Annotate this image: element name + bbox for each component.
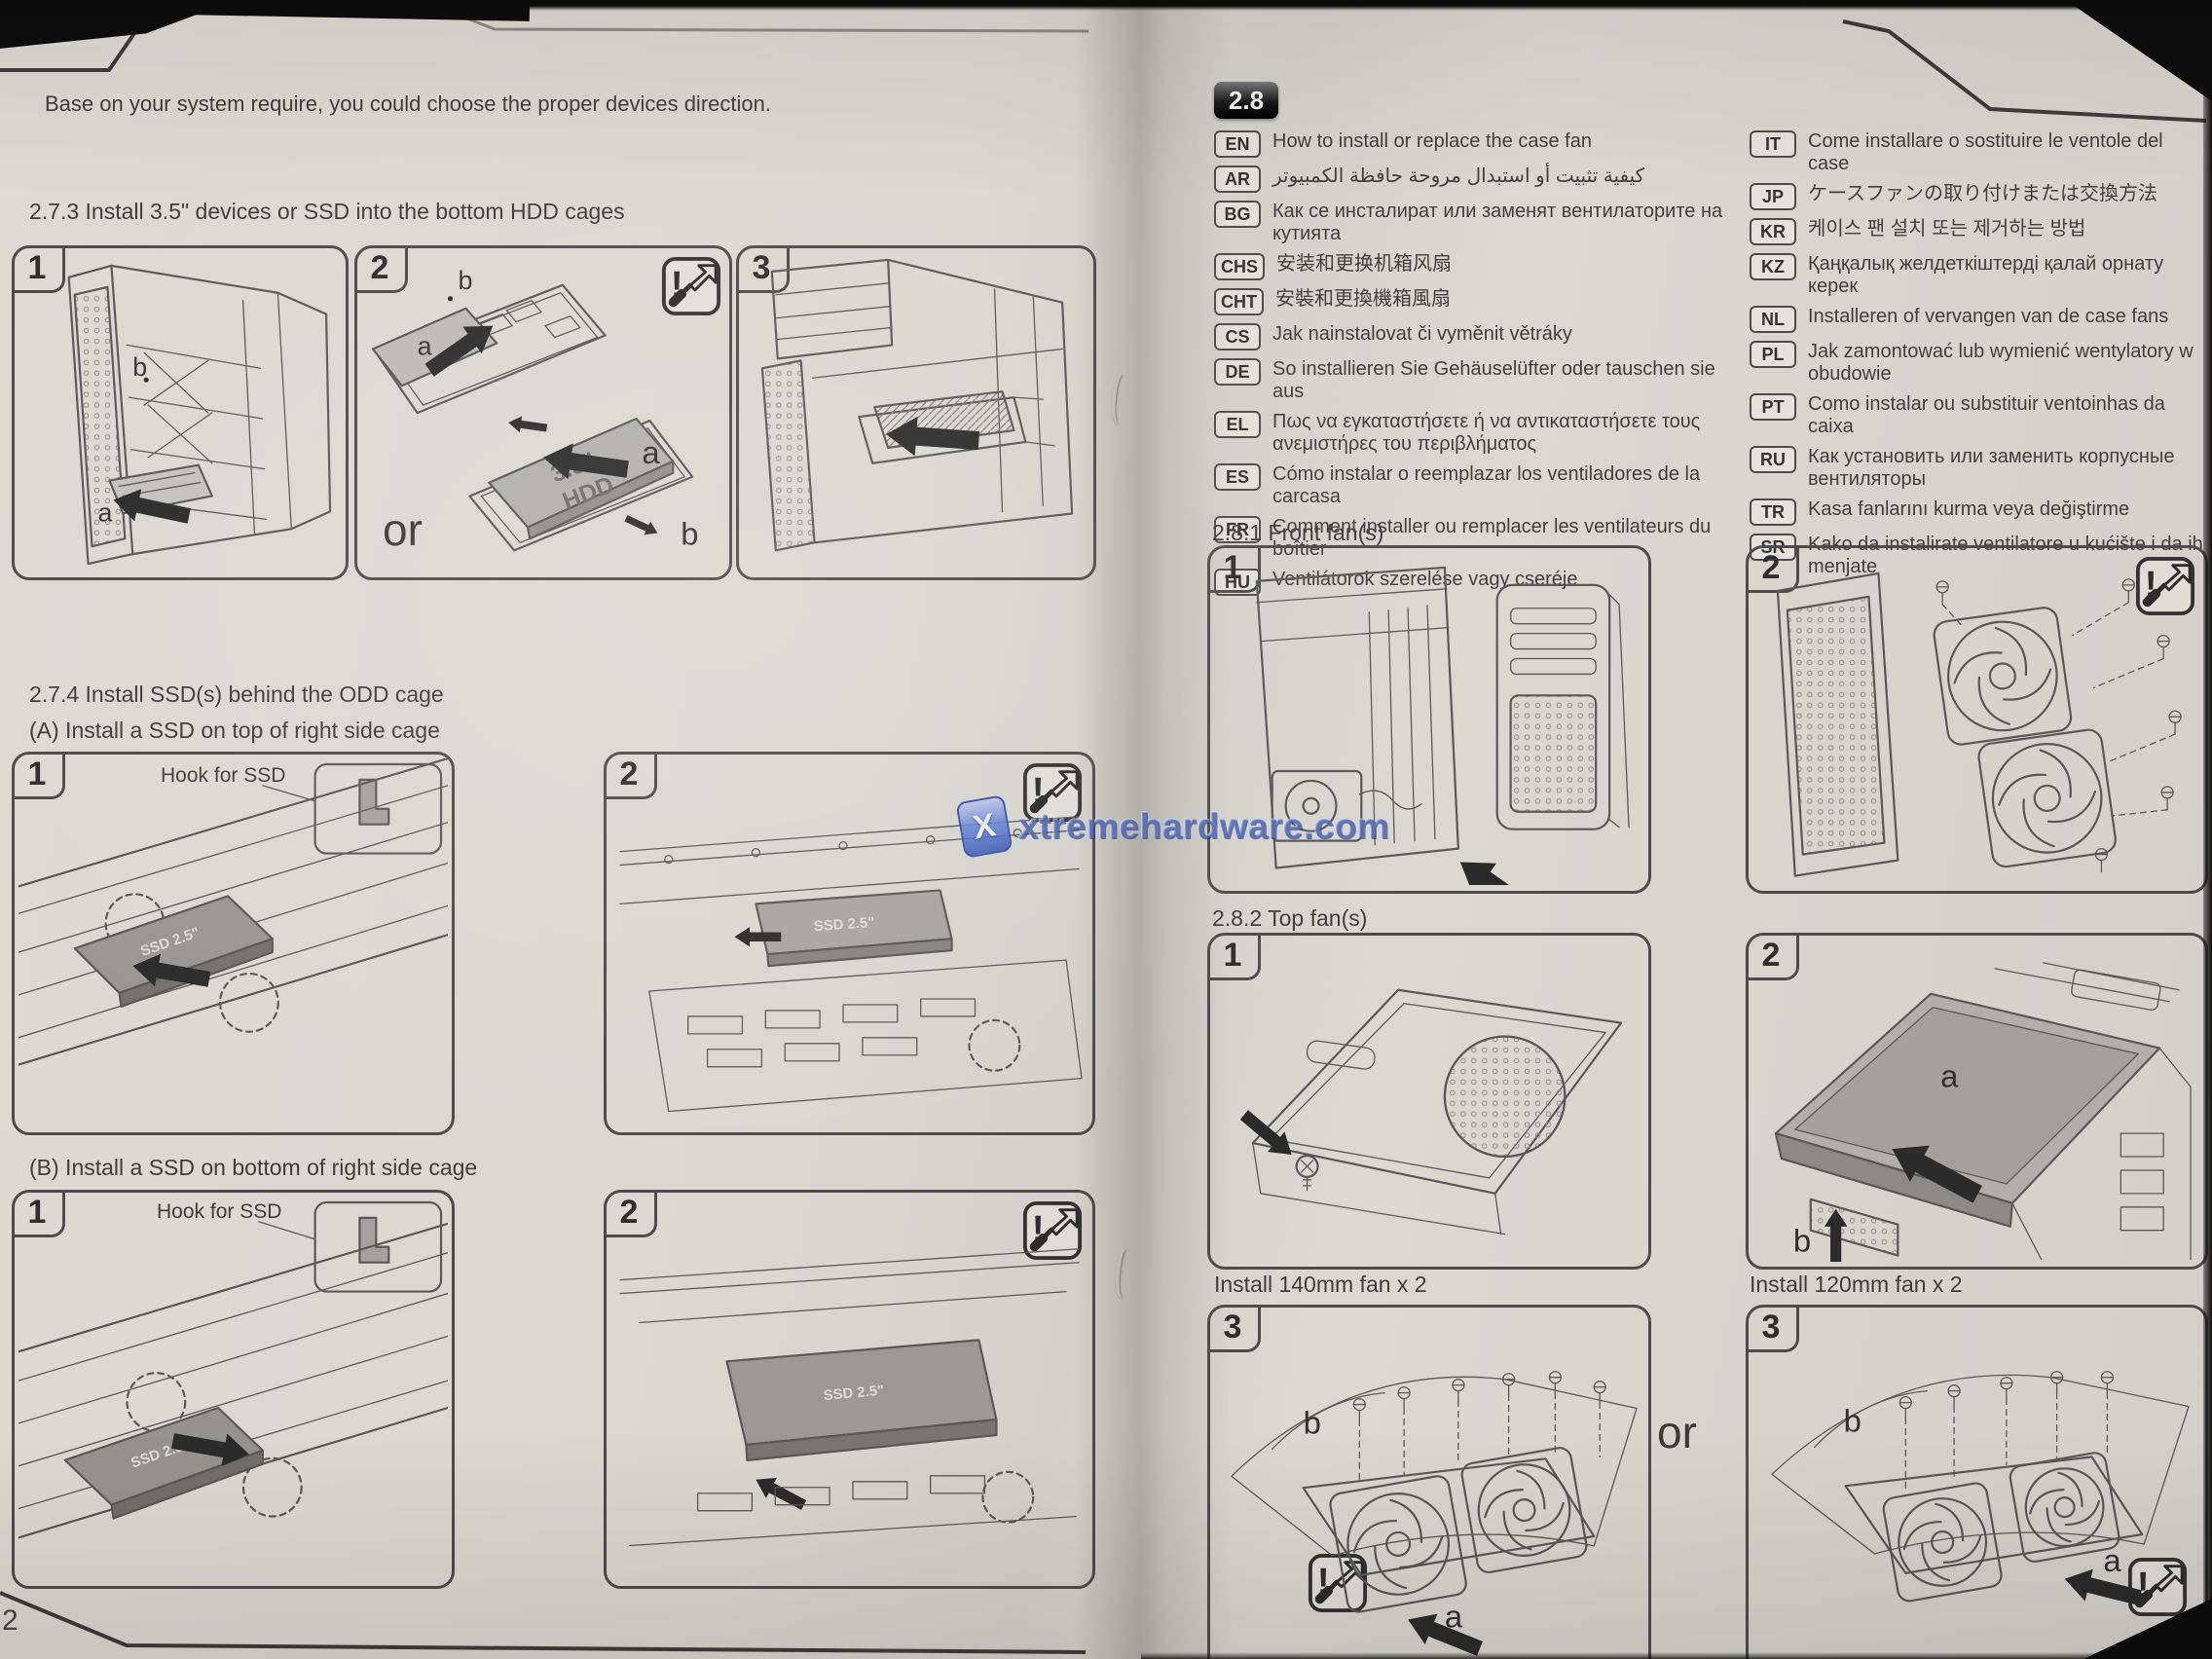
language-code-badge: PT	[1750, 393, 1796, 421]
language-text: كيفية تثبيت أو استبدال مروحة حافظة الكمب…	[1272, 166, 1644, 188]
caption-install-120mm: Install 120mm fan x 2	[1750, 1272, 1963, 1298]
manual-spread: Base on your system require, you could c…	[0, 0, 2212, 1659]
svg-text:a: a	[1940, 1057, 1959, 1093]
language-code-badge: BG	[1214, 201, 1261, 228]
lang-row-bg: BGКак се инсталират или заменят вентилат…	[1214, 201, 1748, 245]
language-text: Қаңқалық желдеткіштерді қалай орнату кер…	[1808, 253, 2207, 298]
figure-282-step1: 1	[1207, 933, 1651, 1270]
figure-140mm-fans: 3 !	[1207, 1305, 1651, 1659]
page-number: 2	[2, 1604, 18, 1638]
or-label: or	[383, 503, 423, 556]
heading-2-7-3: 2.7.3 Install 3.5" devices or SSD into t…	[29, 199, 625, 225]
language-text: 케이스 팬 설치 또는 제거하는 방법	[1808, 218, 2085, 240]
lang-row-cht: CHT安裝和更換機箱風扇	[1214, 288, 1748, 315]
lang-row-jp: JPケースファンの取り付けまたは交換方法	[1750, 183, 2207, 210]
lang-row-ar: ARكيفية تثبيت أو استبدال مروحة حافظة الك…	[1214, 166, 1748, 193]
svg-text:a: a	[418, 331, 432, 360]
lang-row-it: ITCome installare o sostituire le ventol…	[1750, 130, 2207, 175]
figure-282-step2: 2 a b	[1746, 933, 2208, 1270]
language-code-badge: EN	[1214, 130, 1261, 158]
language-text: Как установить или заменить корпусные ве…	[1808, 446, 2207, 491]
ssd-top-mount-drawing: SSD 2.5"	[18, 758, 448, 1126]
language-code-badge: PL	[1750, 341, 1796, 368]
photo-of-manual: Base on your system require, you could c…	[0, 0, 2212, 1659]
intro-text: Base on your system require, you could c…	[45, 92, 771, 117]
language-text: How to install or replace the case fan	[1272, 130, 1592, 153]
language-code-badge: KZ	[1750, 253, 1796, 280]
language-text: 安装和更换机箱风扇	[1276, 253, 1452, 276]
lang-row-pl: PLJak zamontować lub wymienić wentylator…	[1750, 341, 2207, 386]
photo-edge-right	[2203, 0, 2212, 1659]
svg-text:b: b	[1844, 1402, 1862, 1438]
or-label: or	[1657, 1406, 1697, 1458]
language-text: Come installare o sostituire le ventole …	[1808, 130, 2207, 175]
heading-2-7-4: 2.7.4 Install SSD(s) behind the ODD cage	[29, 682, 444, 708]
heading-2-8-1: 2.8.1 Front fan(s)	[1212, 520, 1383, 546]
language-text: Jak nainstalovat či vyměnit větráky	[1272, 323, 1572, 346]
subheading-274-a: (A) Install a SSD on top of right side c…	[29, 718, 440, 744]
language-code-badge: IT	[1750, 130, 1796, 158]
language-code-badge: ES	[1214, 463, 1261, 491]
figure-273-step1: 1 b a	[12, 245, 349, 580]
language-code-badge: TR	[1750, 498, 1796, 526]
staple	[1110, 373, 1131, 424]
language-text: So installieren Sie Gehäuselüfter oder t…	[1272, 358, 1748, 403]
language-code-badge: DE	[1214, 358, 1261, 386]
heading-2-8-2: 2.8.2 Top fan(s)	[1212, 905, 1367, 932]
lang-row-chs: CHS安装和更换机箱风扇	[1214, 253, 1748, 280]
caption-install-140mm: Install 140mm fan x 2	[1214, 1272, 1427, 1298]
top-cover-slide-drawing: a b	[1752, 940, 2201, 1262]
svg-text:b: b	[1304, 1404, 1321, 1440]
top-120mm-fan-install-drawing: b a	[1752, 1311, 2201, 1659]
ssd-tray-top-view-drawing: SSD 2.5"	[610, 758, 1088, 1126]
language-list-right: ITCome installare o sostituire le ventol…	[1750, 130, 2207, 578]
case-tray-insert-drawing	[743, 252, 1089, 571]
figure-120mm-fans: 3 !	[1746, 1305, 2208, 1659]
svg-text:b: b	[681, 515, 698, 551]
svg-text:b: b	[458, 266, 472, 295]
figure-274b-step2: 2 ! SSD 2.5"	[604, 1190, 1095, 1589]
language-text: ケースファンの取り付けまたは交換方法	[1808, 183, 2157, 205]
language-code-badge: CHS	[1214, 253, 1265, 280]
svg-text:a: a	[2103, 1542, 2121, 1578]
ssd-bottom-mount-drawing: SSD 2.5"	[18, 1197, 448, 1580]
lang-row-ru: RUКак установить или заменить корпусные …	[1750, 446, 2207, 491]
lang-row-pt: PTComo instalar ou substituir ventoinhas…	[1750, 393, 2207, 438]
ssd-bottom-tray-drawing: SSD 2.5"	[610, 1197, 1088, 1580]
language-text: Πως να εγκαταστήσετε ή να αντικαταστήσετ…	[1272, 411, 1748, 456]
language-code-badge: NL	[1750, 306, 1796, 333]
language-code-badge: KR	[1750, 218, 1796, 245]
figure-273-step3: 3	[736, 245, 1096, 580]
language-text: Как се инсталират или заменят вентилатор…	[1272, 201, 1748, 245]
language-text: 安裝和更換機箱風扇	[1275, 288, 1451, 311]
figure-274b-step1: 1 Hook for SSD SSD 2.5"	[12, 1190, 455, 1589]
figure-281-step1: 1	[1207, 545, 1651, 894]
front-bezel-removal-drawing	[1214, 552, 1644, 885]
case-bottom-hdd-cage-drawing: b a	[18, 252, 342, 571]
lang-row-kz: KZҚаңқалық желдеткіштерді қалай орнату к…	[1750, 253, 2207, 298]
lang-row-cs: CSJak nainstalovat či vyměnit větráky	[1214, 323, 1748, 350]
subheading-274-b: (B) Install a SSD on bottom of right sid…	[29, 1155, 477, 1181]
lang-row-de: DESo installieren Sie Gehäuselüfter oder…	[1214, 358, 1748, 403]
figure-274a-step1: 1 Hook for SSD SSD 2.5"	[12, 752, 455, 1135]
language-code-badge: RU	[1750, 446, 1796, 473]
figure-273-step2: 2 ! b a	[354, 245, 732, 580]
lang-row-nl: NLInstalleren of vervangen van de case f…	[1750, 306, 2207, 333]
staple	[1114, 1247, 1135, 1299]
svg-text:a: a	[642, 434, 660, 470]
front-fans-screws-drawing	[1752, 552, 2201, 886]
lang-row-kr: KR케이스 팬 설치 또는 제거하는 방법	[1750, 218, 2207, 245]
language-code-badge: CS	[1214, 323, 1261, 350]
language-text: Kasa fanlarını kurma veya değiştirme	[1808, 498, 2129, 521]
figure-274a-step2: 2 ! SSD 2.5"	[604, 752, 1095, 1135]
language-code-badge: JP	[1750, 183, 1796, 210]
language-code-badge: AR	[1214, 166, 1261, 193]
svg-text:a: a	[98, 498, 113, 527]
top-cover-thumbscrew-drawing	[1214, 940, 1644, 1262]
language-text: Como instalar ou substituir ventoinhas d…	[1808, 393, 2207, 438]
lang-row-es: ESCómo instalar o reemplazar los ventila…	[1214, 463, 1748, 508]
lang-row-el: ELΠως να εγκαταστήσετε ή να αντικαταστήσ…	[1214, 411, 1748, 456]
section-2-8-badge: 2.8	[1214, 82, 1278, 119]
language-text: Installeren of vervangen van de case fan…	[1808, 306, 2168, 328]
photo-edge-bottom	[1141, 1652, 2212, 1659]
lang-row-tr: TRKasa fanlarını kurma veya değiştirme	[1750, 498, 2207, 526]
svg-text:b: b	[132, 352, 147, 382]
language-code-badge: EL	[1214, 411, 1261, 438]
language-text: Cómo instalar o reemplazar los ventilado…	[1272, 463, 1748, 508]
language-text: Jak zamontować lub wymienić wentylatory …	[1808, 341, 2207, 386]
svg-text:b: b	[1793, 1223, 1811, 1259]
top-140mm-fan-install-drawing: b a	[1214, 1311, 1644, 1659]
language-code-badge: CHT	[1214, 288, 1264, 315]
figure-281-step2: 2 !	[1746, 545, 2208, 894]
lang-row-en: ENHow to install or replace the case fan	[1214, 130, 1748, 158]
